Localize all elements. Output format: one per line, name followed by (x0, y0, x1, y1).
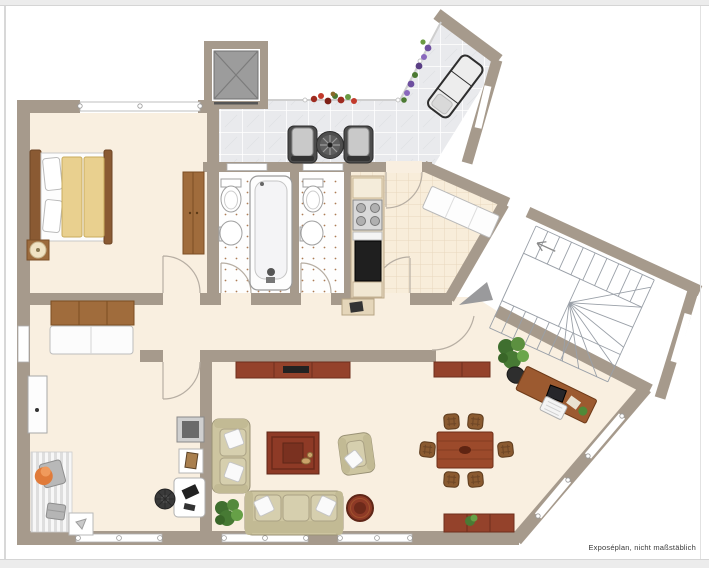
nightstand (27, 240, 49, 260)
dining-table (437, 432, 493, 468)
office-desk (174, 478, 205, 517)
floorplan-drawing (0, 0, 709, 568)
kitchen-counter (351, 176, 384, 298)
dining-sideboard (444, 514, 514, 532)
viewer-right-edge (700, 6, 701, 559)
hall-cabinet (342, 299, 374, 315)
sofa-two-seat (212, 419, 250, 493)
terrace-table (317, 132, 344, 159)
bed (30, 150, 112, 244)
ottoman (46, 503, 66, 520)
viewer-left-edge (4, 6, 6, 559)
sink-basin (301, 221, 323, 245)
viewer-top-edge (0, 0, 709, 6)
kitchen-sink (353, 232, 382, 240)
office-chair (155, 489, 175, 509)
entrance-arrow-icon (459, 282, 493, 305)
hall-sideboard (236, 362, 350, 378)
terrace-chair-left (288, 126, 317, 163)
sink-basin (220, 221, 242, 245)
tv (177, 417, 204, 442)
office-side-table (69, 513, 93, 535)
office-cabinet (28, 376, 47, 433)
living-rug (267, 432, 319, 474)
armchair (337, 432, 375, 476)
terrace-chair-right (344, 126, 373, 163)
fridge (355, 241, 381, 281)
viewer-bottom-edge (0, 559, 709, 568)
round-side-table (347, 495, 373, 521)
picture-table (179, 449, 203, 473)
tub-faucet (267, 268, 275, 276)
elevator (204, 41, 268, 109)
office-sideboard (51, 301, 134, 325)
hall-sideboard-right (434, 362, 490, 377)
plan-caption: Exposéplan, nicht maßstäblich (588, 543, 696, 552)
daybed (50, 326, 133, 354)
floorplan-page: Exposéplan, nicht maßstäblich (0, 0, 709, 568)
sofa-three-seat (245, 491, 343, 535)
wardrobe (183, 172, 204, 254)
